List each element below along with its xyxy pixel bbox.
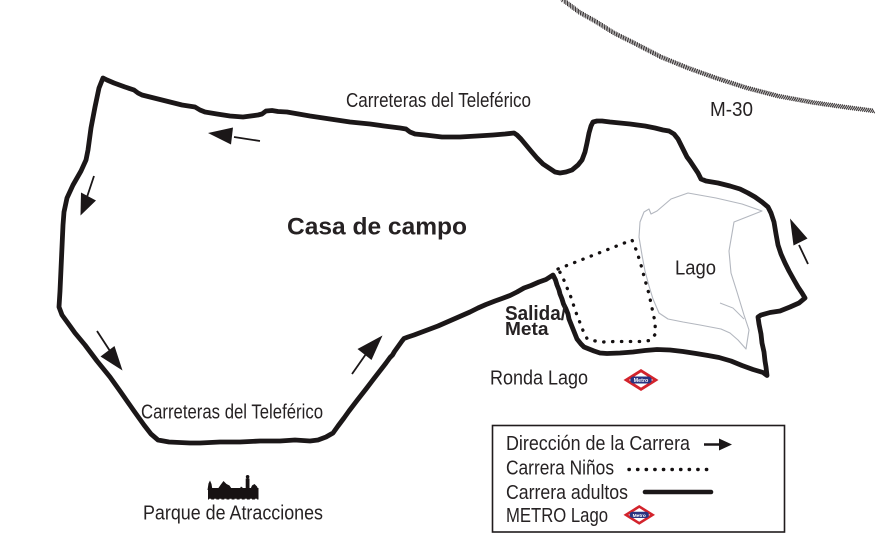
svg-text:Dirección de la Carrera: Dirección de la Carrera [506, 433, 691, 455]
svg-text:Carrera Niños: Carrera Niños [506, 458, 614, 480]
svg-text:Meta: Meta [505, 319, 550, 339]
svg-text:Casa de campo: Casa de campo [287, 214, 467, 241]
svg-text:METRO Lago: METRO Lago [506, 505, 608, 527]
svg-text:Carreteras del Teleférico: Carreteras del Teleférico [346, 90, 531, 112]
svg-text:Ronda Lago: Ronda Lago [490, 368, 588, 390]
svg-text:Carrera adultos: Carrera adultos [506, 482, 628, 504]
svg-text:Carreteras del Teleférico: Carreteras del Teleférico [141, 402, 323, 424]
svg-text:Parque de Atracciones: Parque de Atracciones [143, 503, 323, 525]
svg-text:M-30: M-30 [710, 99, 753, 121]
svg-text:Lago: Lago [675, 258, 716, 280]
